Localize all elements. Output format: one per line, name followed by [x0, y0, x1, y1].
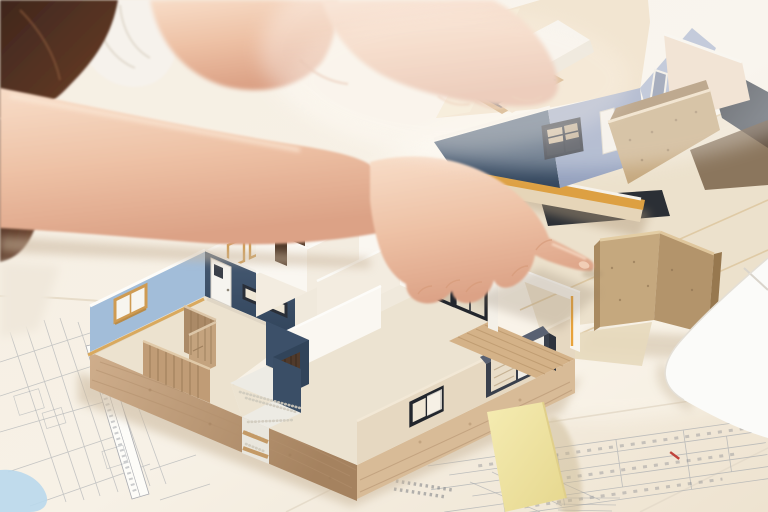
photo-stage: Two people at a bright white worktable r…: [0, 0, 768, 512]
overexposure-arm: [290, 10, 630, 150]
piece-left-wall-edge: [594, 240, 600, 331]
interior-white-door: [211, 258, 231, 307]
scene-photo: Two people at a bright white worktable r…: [0, 0, 768, 512]
piece-left-wall: [600, 232, 660, 327]
fingertip-contact-shadow: [582, 270, 602, 278]
door-knob: [227, 289, 230, 292]
